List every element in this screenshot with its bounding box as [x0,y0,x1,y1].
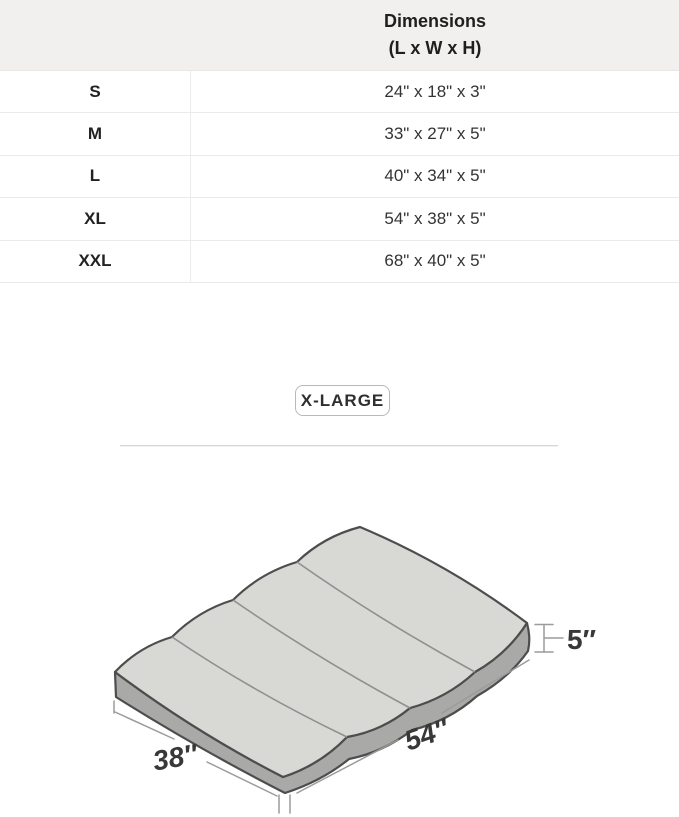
size-cell: L [0,156,191,197]
table-row: XXL 68" x 40" x 5" [0,241,679,283]
table-row: S 24" x 18" x 3" [0,71,679,113]
size-cell: S [0,71,191,112]
mattress-top-face [115,527,527,777]
dimensions-cell: 40" x 34" x 5" [191,156,679,197]
table-row: XL 54" x 38" x 5" [0,198,679,240]
dimensions-cell: 33" x 27" x 5" [191,113,679,154]
selected-size-label: X-LARGE [301,391,385,411]
size-cell: XXL [0,241,191,282]
dimensions-cell: 24" x 18" x 3" [191,71,679,112]
table-row: M 33" x 27" x 5" [0,113,679,155]
dimensions-header-line1: Dimensions [384,8,486,35]
dimensions-cell: 54" x 38" x 5" [191,198,679,239]
dimensions-header-line2: (L x W x H) [389,35,482,62]
width-dimension-label: 38″ [150,738,201,777]
table-row: L 40" x 34" x 5" [0,156,679,198]
height-dimension-label: 5″ [567,624,596,655]
dimensions-cell: 68" x 40" x 5" [191,241,679,282]
size-cell: M [0,113,191,154]
size-diagram: 5″ 54″ 38″ [85,490,625,817]
selected-size-badge[interactable]: X-LARGE [295,385,390,416]
table-header-row: Dimensions (L x W x H) [0,0,679,71]
size-cell: XL [0,198,191,239]
size-column-header [0,0,191,70]
size-chart-table: Dimensions (L x W x H) S 24" x 18" x 3" … [0,0,679,283]
section-divider [120,445,558,446]
dimensions-column-header: Dimensions (L x W x H) [191,0,679,70]
